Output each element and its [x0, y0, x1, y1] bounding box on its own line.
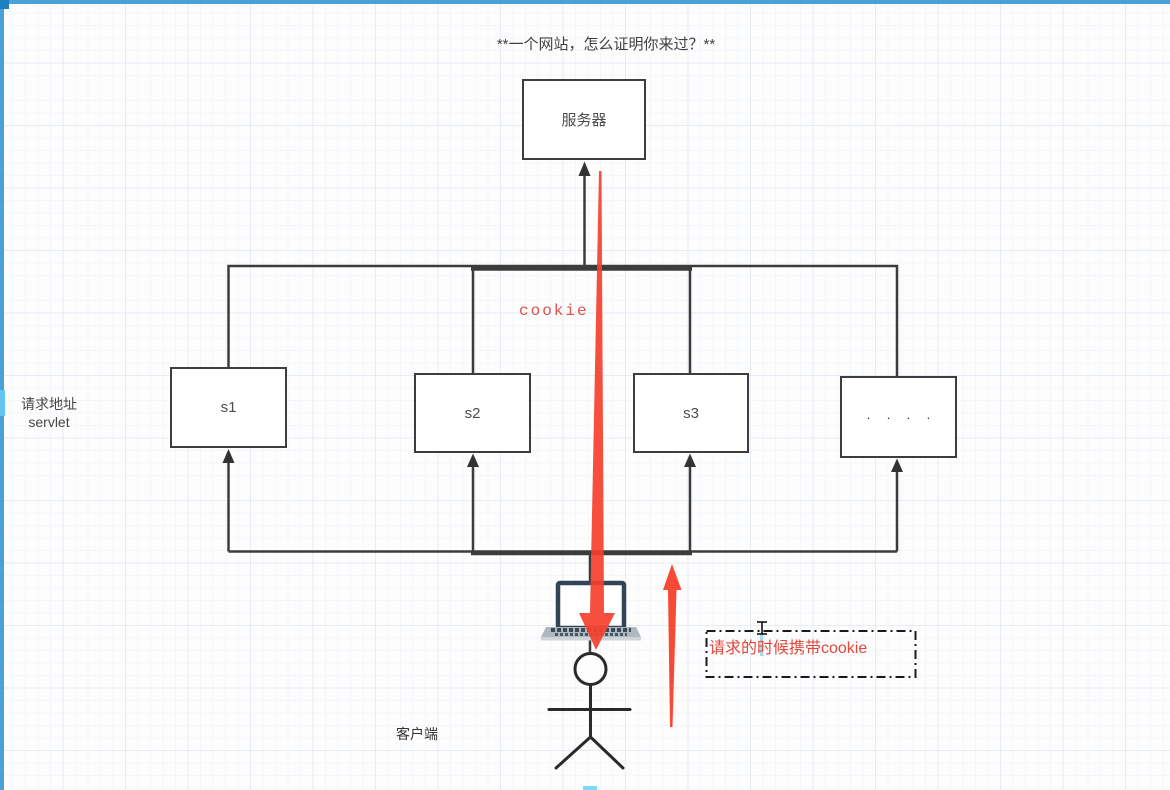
corner-marker: [0, 0, 9, 9]
client-label[interactable]: 客户端: [396, 724, 438, 744]
red-down-arrow[interactable]: [579, 171, 615, 650]
top-border-bar: [0, 0, 1170, 4]
stick-figure-icon[interactable]: [549, 654, 630, 769]
cookie-label[interactable]: cookie: [519, 302, 589, 320]
request-address-label[interactable]: 请求地址 servlet: [6, 395, 92, 431]
note-text[interactable]: 请求的时候携带cookie: [709, 634, 915, 658]
request-address-line1: 请求地址: [6, 395, 92, 413]
request-address-line2: servlet: [6, 413, 92, 431]
diagram-canvas: 服务器 s1 s2 s3 · · · ·: [0, 0, 1170, 790]
red-up-arrow[interactable]: [663, 564, 682, 727]
bottom-selection-mark: [583, 786, 597, 790]
diagram-title[interactable]: **一个网站，怎么证明你来过？**: [420, 33, 792, 54]
left-scroll-handle[interactable]: [0, 390, 5, 416]
ibeam-cursor-icon: [757, 622, 767, 634]
overlay-layer: [0, 0, 1170, 790]
